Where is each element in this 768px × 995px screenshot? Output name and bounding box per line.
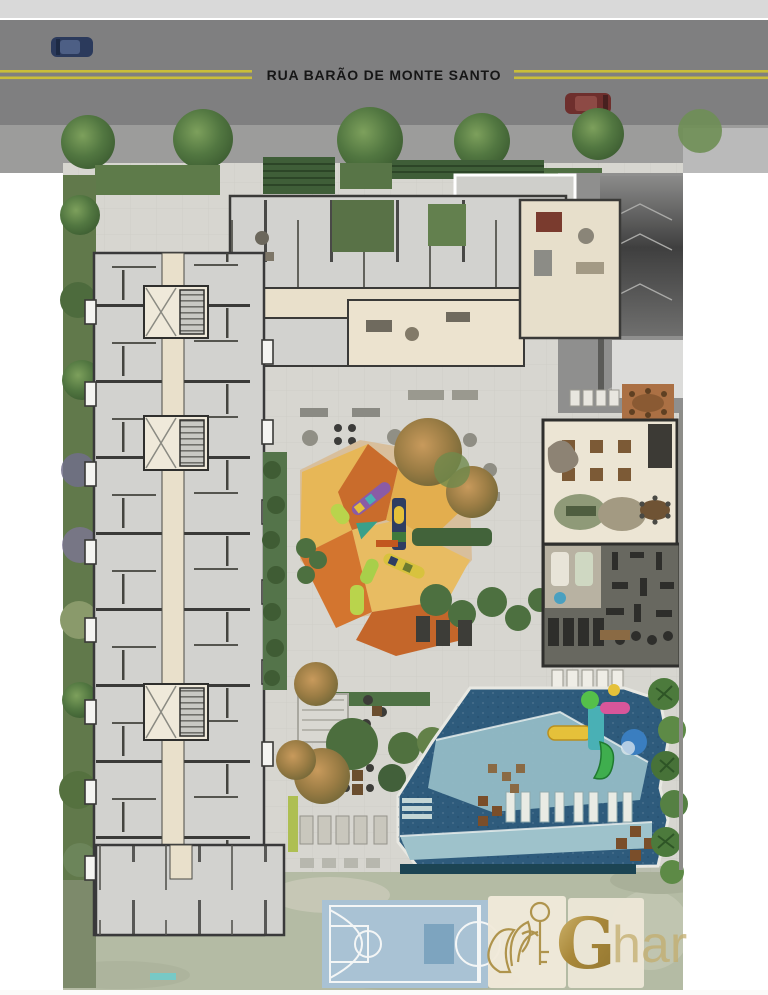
plunge xyxy=(554,592,566,604)
bar-counter xyxy=(648,424,672,468)
site-plan-canvas: RUA BARÃO DE MONTE SANTO xyxy=(0,0,768,995)
amenity-block xyxy=(543,384,680,690)
interior-garden xyxy=(332,200,394,252)
tree-icon xyxy=(678,109,722,153)
pergola-green xyxy=(263,157,335,194)
bottom-margin xyxy=(0,990,768,995)
stair-elevator-core xyxy=(144,684,208,740)
curb-line xyxy=(0,18,768,20)
hedge xyxy=(412,528,492,546)
tree-icon xyxy=(294,662,338,706)
street-name-label: RUA BARÃO DE MONTE SANTO xyxy=(267,66,502,83)
top-sidewalk xyxy=(0,0,768,20)
palm-icon xyxy=(581,691,599,709)
site-plan: RUA BARÃO DE MONTE SANTO xyxy=(0,0,768,995)
water-feature xyxy=(150,973,176,980)
rug-oval xyxy=(598,497,646,531)
tree-icon xyxy=(388,732,420,764)
lobby-hall xyxy=(348,300,524,366)
right-margin xyxy=(683,173,768,995)
court-paint xyxy=(424,924,454,964)
car-blue-icon xyxy=(51,37,93,57)
dining-oval xyxy=(640,500,670,520)
interior-garden xyxy=(428,204,466,246)
pool-steps xyxy=(402,798,432,819)
tree-icon xyxy=(173,109,233,169)
rug xyxy=(536,212,562,232)
party-room xyxy=(543,420,677,544)
stair-elevator-core xyxy=(144,286,208,338)
tree-icon xyxy=(61,115,115,169)
gym xyxy=(543,544,680,666)
outdoor-dining-deck xyxy=(622,384,674,422)
boundary-wall xyxy=(679,410,683,870)
hedge-yellow xyxy=(288,796,298,852)
gym-bench xyxy=(600,630,630,640)
loungers-row xyxy=(300,816,387,844)
west-building-wing xyxy=(85,253,273,935)
watermark-rest: har xyxy=(612,916,687,974)
tree-icon xyxy=(572,108,624,160)
corridor xyxy=(162,253,184,935)
tree-icon xyxy=(276,740,316,780)
basketball-court-icon xyxy=(322,900,500,988)
left-margin xyxy=(0,173,63,995)
stair-elevator-core xyxy=(144,416,208,470)
watermark-initial: G xyxy=(556,902,616,985)
infinity-edge xyxy=(400,864,636,874)
